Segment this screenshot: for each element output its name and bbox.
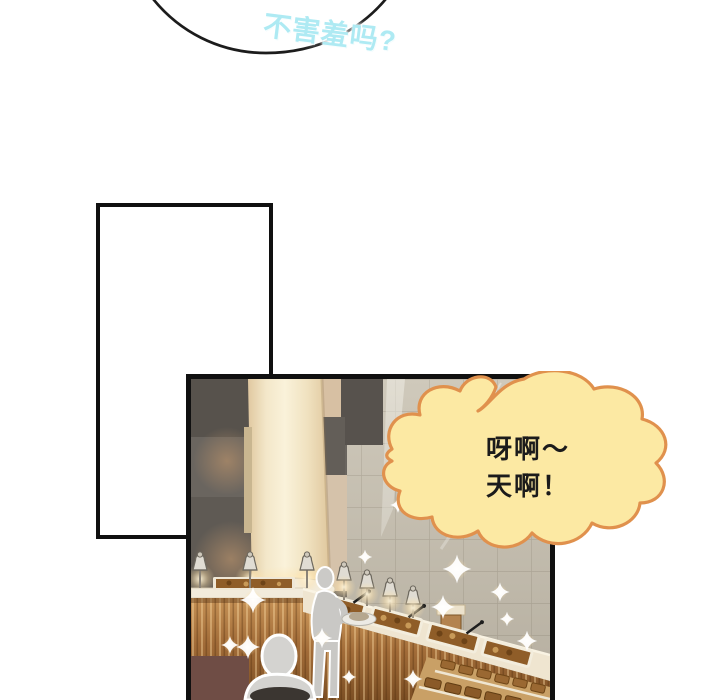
- shout-bubble-text: 呀啊～ 天啊！: [486, 431, 570, 505]
- shout-bubble-line-2: 天啊！: [486, 468, 570, 505]
- shout-bubble-line-1: 呀啊～: [486, 431, 570, 468]
- comic-page: 不害羞吗?: [0, 0, 720, 700]
- serving-plate: [342, 612, 376, 626]
- food-tray: [213, 577, 295, 590]
